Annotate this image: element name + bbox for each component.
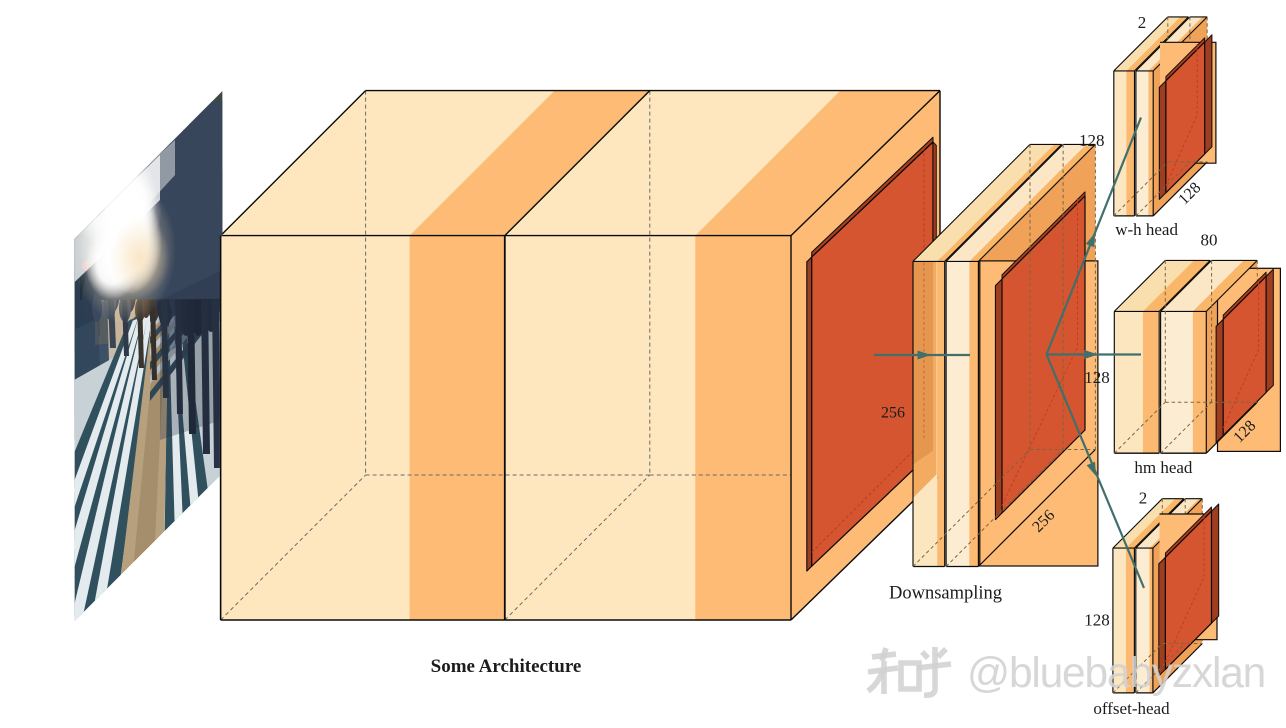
svg-text:offset-head: offset-head xyxy=(1093,699,1170,718)
svg-text:128: 128 xyxy=(1084,368,1110,387)
svg-text:80: 80 xyxy=(1201,231,1218,250)
svg-text:256: 256 xyxy=(881,405,905,422)
svg-text:@bluebabyzxlan: @bluebabyzxlan xyxy=(967,650,1265,697)
svg-text:2: 2 xyxy=(1139,489,1148,508)
svg-text:w-h head: w-h head xyxy=(1115,220,1178,239)
svg-text:128: 128 xyxy=(1084,611,1110,630)
svg-text:hm head: hm head xyxy=(1134,458,1193,477)
svg-text:Downsampling: Downsampling xyxy=(889,584,1002,604)
svg-text:Some Architecture: Some Architecture xyxy=(431,656,582,677)
svg-text:128: 128 xyxy=(1079,131,1105,150)
svg-text:2: 2 xyxy=(1138,13,1147,32)
